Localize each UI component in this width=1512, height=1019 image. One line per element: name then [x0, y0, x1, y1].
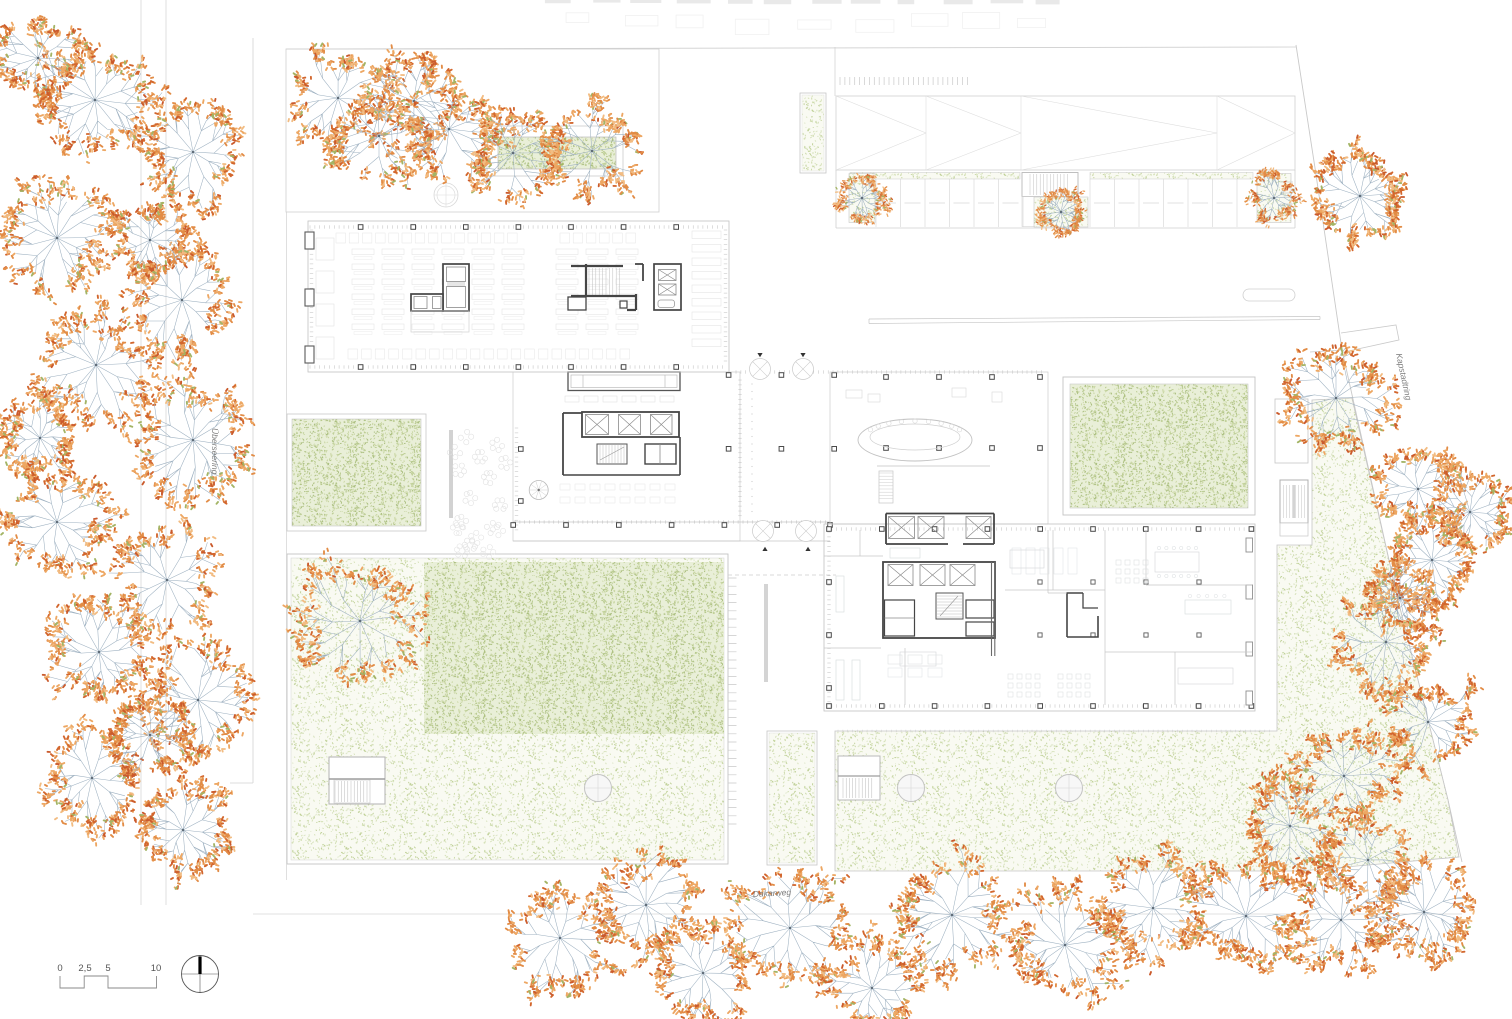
svg-text:2,5: 2,5	[78, 963, 91, 974]
svg-text:Dakarweg: Dakarweg	[753, 887, 792, 899]
svg-text:Überseering: Überseering	[210, 428, 220, 475]
svg-text:10: 10	[151, 963, 162, 974]
svg-text:5: 5	[105, 963, 110, 974]
svg-text:0: 0	[57, 963, 62, 974]
